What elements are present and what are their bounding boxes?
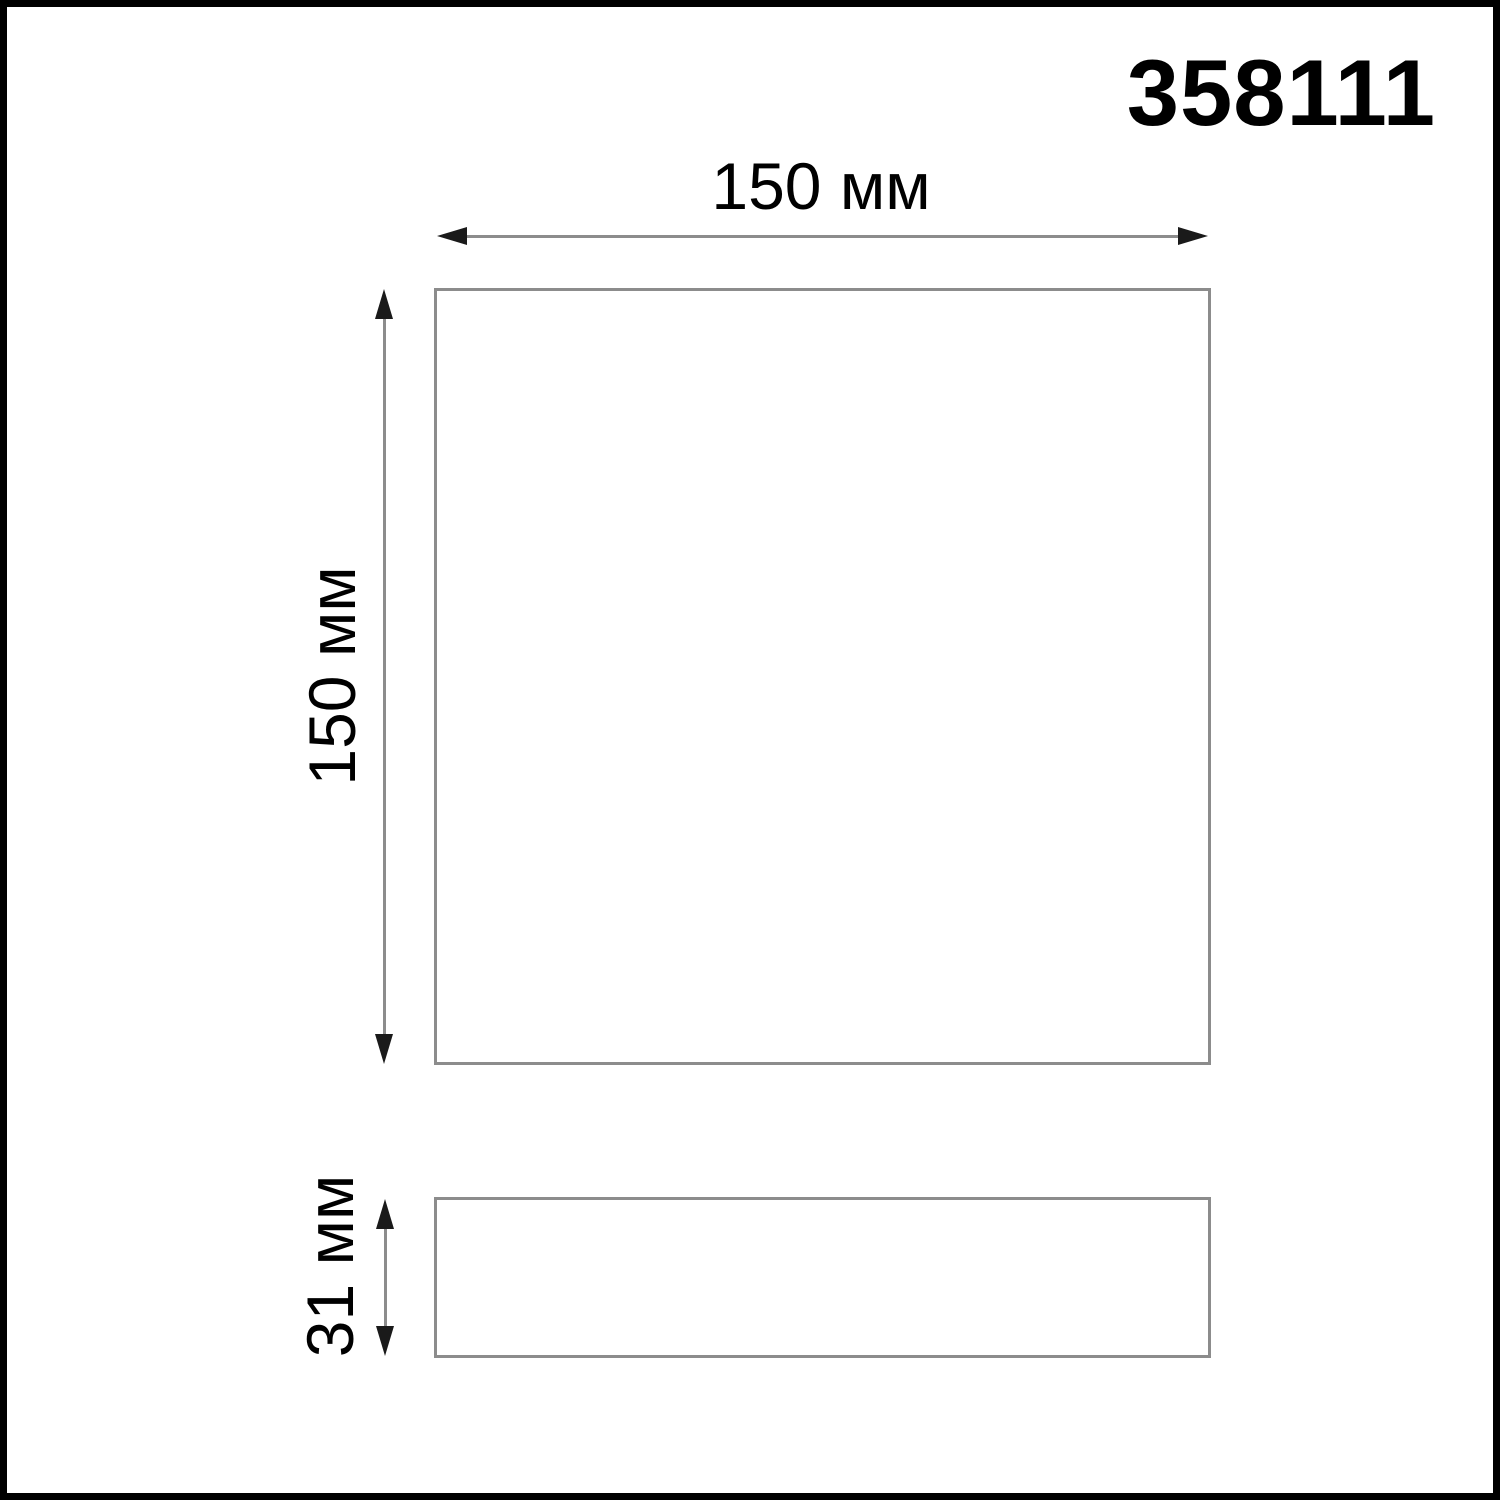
width-dimension-label: 150 мм	[711, 153, 930, 219]
depth-dimension-line	[384, 1222, 387, 1332]
diagram-canvas: 358111 150 мм 150 мм 31 мм	[0, 0, 1500, 1500]
product-code: 358111	[1127, 46, 1436, 140]
arrow-up-icon	[376, 1199, 394, 1229]
height-dimension-line	[383, 314, 386, 1039]
width-dimension-line	[700, 235, 1186, 238]
arrow-down-icon	[376, 1326, 394, 1356]
arrow-left-icon	[437, 227, 467, 245]
height-dimension-label: 150 мм	[299, 566, 365, 785]
front-view-outline	[434, 288, 1211, 1065]
depth-dimension-label: 31 мм	[297, 1175, 363, 1358]
side-view-outline	[434, 1197, 1211, 1358]
arrow-down-icon	[375, 1034, 393, 1064]
arrow-up-icon	[375, 289, 393, 319]
arrow-right-icon	[1178, 227, 1208, 245]
